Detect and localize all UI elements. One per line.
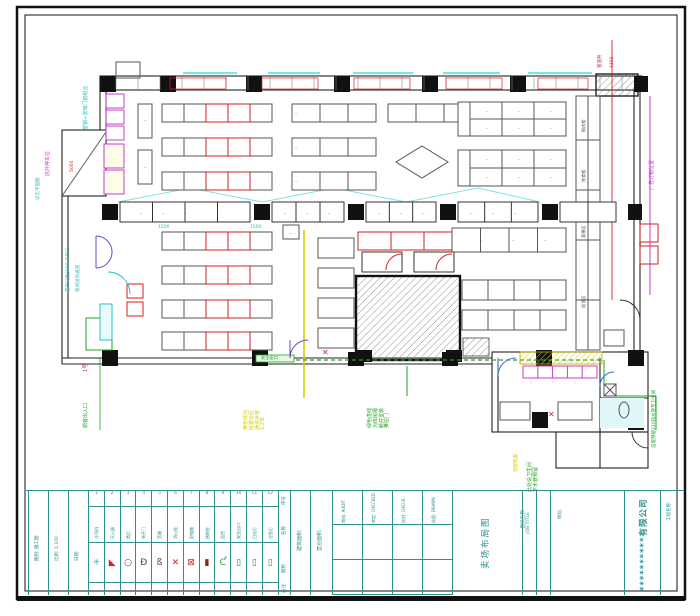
duct-shaft-hatch	[596, 74, 638, 96]
shelf-row	[162, 232, 272, 250]
legend-number: 9	[215, 491, 230, 507]
legend-name: 监控	[220, 531, 226, 539]
legend-rowlabel-note: 备注	[281, 584, 287, 593]
legend-name: 结构柱	[205, 527, 211, 539]
frame-bottom-band	[17, 596, 685, 601]
annex-fixtures	[500, 352, 644, 428]
legend-number: 2	[105, 491, 120, 507]
legend-name: 配电箱	[189, 527, 195, 539]
drawing-name: 卖场布局图	[479, 516, 491, 569]
shelf-row	[292, 138, 376, 156]
legend-name: 音箱	[157, 531, 163, 539]
company-col: **********有限公司	[624, 491, 660, 595]
corridor-counters	[576, 96, 658, 350]
legend-symbol-10-icon: ▯	[231, 543, 246, 583]
shelf-row	[272, 202, 344, 222]
legend-rowlabel-sym: 图例	[281, 564, 287, 573]
info-field-text: 图别: 施工图	[34, 536, 40, 561]
legend-item: 4单开门Ð	[135, 491, 151, 595]
shelf-row	[162, 300, 272, 318]
approval-field-check: 校对: CHECK	[392, 491, 422, 595]
info-field: 图别: 施工图	[28, 491, 48, 595]
legend-symbol-9-icon: Ƈ	[215, 543, 230, 583]
approval-field-label: 审核: AUDIT	[341, 500, 347, 523]
legend-number: 10	[231, 491, 246, 507]
legend-item: 1冷风机✳	[88, 491, 104, 595]
legend-item: 11日光灯▯	[246, 491, 262, 595]
shelf-row	[162, 266, 272, 284]
legend-symbol-11-icon: ▯	[247, 543, 262, 583]
legend-name: 单开门	[141, 527, 147, 539]
legend-item: 5音箱ß	[151, 491, 167, 595]
shelf-row	[560, 202, 616, 222]
project-col: 工程名称:	[660, 491, 684, 595]
project-label: 工程名称:	[666, 501, 672, 521]
shelf-row	[318, 298, 354, 318]
legend-name: 筒灯	[126, 531, 132, 539]
title-block: 图别: 施工图比例: 1:100日期: 1冷风机✳2灭火器◣3筒灯○4单开门Ð5…	[26, 490, 684, 595]
shelf-row	[162, 104, 272, 122]
info-field: 比例: 1:100	[48, 491, 68, 595]
shelf-row	[292, 172, 376, 190]
legend-number: 6	[168, 491, 183, 507]
shelf-row	[318, 328, 354, 348]
legend-name: 日光灯	[252, 527, 258, 539]
approval-field-label: 校对: CHECK	[401, 499, 407, 523]
approval-field-label: 绘图: DRAWN	[431, 497, 437, 523]
address-col: 地址:	[550, 491, 624, 595]
legend-item: 10安全出口▯	[230, 491, 246, 595]
building-area-label: 建筑面积:	[296, 529, 303, 551]
legend-number: 1	[89, 491, 104, 507]
legend-item: 3筒灯○	[120, 491, 136, 595]
job-title-col: 图纸名称: JOB TITLE 卖场布局图	[452, 491, 522, 595]
shelf-row	[458, 102, 470, 136]
cad-sheet: 塑钢+玻璃门窗组合店外停车位详见平面图5000卷帘门宽3000 下货口夜间进货通…	[0, 0, 700, 616]
legend-symbol-6-icon: ✕	[168, 543, 183, 583]
shelf-row	[120, 202, 250, 222]
shelf-row	[462, 310, 566, 330]
info-field-text: 比例: 1:100	[54, 536, 60, 561]
legend-number: 5	[152, 491, 167, 507]
legend-symbol-3-icon: ○	[121, 543, 136, 583]
spare-col-1	[522, 491, 536, 595]
shelf-row	[523, 366, 597, 378]
legend-name: 冷风机	[94, 527, 100, 539]
approval-field-drawn: 绘图: DRAWN	[422, 491, 452, 595]
legend-symbol-12-icon: ▯	[263, 543, 278, 583]
legend-number: 11	[247, 491, 262, 507]
legend-name: 灭火器	[110, 527, 116, 539]
legend-symbol-4-icon: Ð	[136, 543, 151, 583]
shelf-row	[162, 138, 272, 156]
shelf-row	[462, 280, 566, 300]
address-label: 地址:	[557, 508, 563, 519]
legend-item: 6消火栓✕	[167, 491, 183, 595]
approval-field-label: 审定: CHECKED	[371, 493, 377, 523]
legend-rowlabel-name: 名称	[281, 526, 287, 535]
storage-room-hatch	[356, 276, 460, 360]
shelf-row	[452, 228, 566, 252]
legend-symbol-8-icon: ▮	[200, 543, 215, 583]
shelf-row	[162, 172, 272, 190]
shelf-row	[292, 104, 376, 122]
legend-number: 7	[184, 491, 199, 507]
legend-number: 8	[200, 491, 215, 507]
approval-field-audit: 审核: AUDIT	[332, 491, 362, 595]
legend-item: 7配电箱⊠	[183, 491, 199, 595]
legend-item: 12应急灯▯	[262, 491, 278, 595]
shelf-row	[318, 238, 354, 258]
legend-row-labels: 序号 名称 图例 备注	[278, 491, 290, 595]
legend-symbol-5-icon: ß	[152, 543, 167, 583]
info-field: 日期:	[68, 491, 88, 595]
legend-item: 2灭火器◣	[104, 491, 120, 595]
legend-name: 应急灯	[268, 527, 274, 539]
legend-symbol-1-icon: ✳	[89, 543, 104, 583]
company-name: **********有限公司	[637, 499, 649, 591]
legend-symbol-7-icon: ⊠	[184, 543, 199, 583]
business-area-label: 营业面积:	[316, 529, 323, 551]
legend-number: 12	[263, 491, 278, 507]
area-col-business: 营业面积:	[310, 491, 330, 595]
area-col-building: 建筑面积:	[290, 491, 310, 595]
shelf-row	[458, 150, 470, 186]
shelf-row	[366, 202, 436, 222]
legend-item: 8结构柱▮	[199, 491, 215, 595]
legend-name: 安全出口	[236, 523, 242, 539]
legend-rowlabel-num: 序号	[281, 496, 287, 505]
shelf-row	[318, 268, 354, 288]
approval-field-checked: 审定: CHECKED	[362, 491, 392, 595]
shelf-row	[458, 202, 538, 222]
legend-number: 3	[121, 491, 136, 507]
stair-hatch	[463, 338, 489, 356]
legend-symbol-2-icon: ◣	[105, 543, 120, 583]
legend-item: 9监控Ƈ	[214, 491, 230, 595]
legend-name: 消火栓	[173, 527, 179, 539]
info-field-text: 日期:	[74, 550, 80, 561]
shelf-row	[162, 332, 272, 350]
legend-number: 4	[136, 491, 151, 507]
spare-col-2	[536, 491, 550, 595]
